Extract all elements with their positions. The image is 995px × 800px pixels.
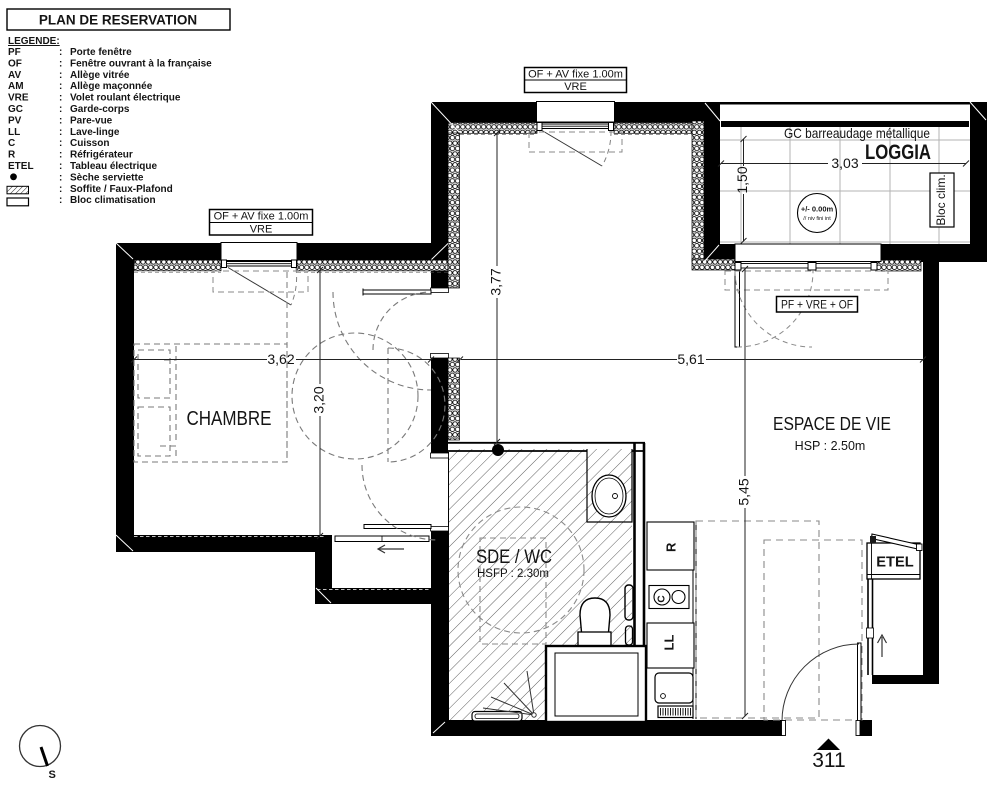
svg-text::: :	[59, 115, 62, 126]
svg-text:Allège vitrée: Allège vitrée	[70, 70, 130, 81]
svg-text::: :	[59, 127, 62, 138]
svg-text:C: C	[8, 138, 15, 149]
svg-text:Lave-linge: Lave-linge	[70, 127, 120, 138]
svg-text::: :	[59, 47, 62, 58]
svg-text:LEGENDE:: LEGENDE:	[8, 36, 60, 47]
svg-text:C: C	[657, 595, 668, 602]
svg-text:Allège maçonnée: Allège maçonnée	[70, 81, 153, 92]
svg-text::: :	[59, 172, 62, 183]
svg-text:SDE / WC: SDE / WC	[476, 547, 552, 568]
svg-text::: :	[59, 70, 62, 81]
svg-text:Porte fenêtre: Porte fenêtre	[70, 47, 132, 58]
svg-text:R: R	[8, 150, 16, 161]
svg-text:Volet roulant électrique: Volet roulant électrique	[70, 93, 181, 104]
svg-text:Bloc clim.: Bloc clim.	[934, 174, 948, 225]
svg-text:GC: GC	[8, 104, 23, 115]
svg-text:PLAN DE RESERVATION: PLAN DE RESERVATION	[39, 13, 197, 28]
svg-text::: :	[59, 93, 62, 104]
svg-text::: :	[59, 150, 62, 161]
svg-text:PF + VRE + OF: PF + VRE + OF	[781, 298, 853, 312]
svg-text:LL: LL	[8, 127, 20, 138]
svg-text:LOGGIA: LOGGIA	[865, 141, 931, 164]
svg-text:Bloc climatisation: Bloc climatisation	[70, 195, 156, 206]
svg-text:CHAMBRE: CHAMBRE	[187, 408, 272, 430]
svg-text:ETEL: ETEL	[8, 161, 34, 172]
svg-text:// niv fini int: // niv fini int	[803, 216, 831, 222]
svg-text:3,03: 3,03	[831, 155, 858, 171]
svg-text:GC barreaudage métallique: GC barreaudage métallique	[784, 125, 930, 141]
svg-text:311: 311	[812, 749, 845, 772]
svg-text::: :	[59, 58, 62, 69]
svg-text:LL: LL	[661, 635, 676, 651]
svg-text:3,62: 3,62	[267, 351, 294, 367]
svg-text:1,50: 1,50	[734, 166, 750, 193]
svg-text:R: R	[663, 542, 678, 552]
svg-text::: :	[59, 184, 62, 195]
svg-text:Sèche serviette: Sèche serviette	[70, 172, 144, 183]
svg-text:AM: AM	[8, 81, 24, 92]
svg-text:Garde-corps: Garde-corps	[70, 104, 130, 115]
svg-text:OF + AV fixe 1.00m: OF + AV fixe 1.00m	[528, 69, 623, 81]
svg-text:HSP : 2.50m: HSP : 2.50m	[795, 439, 866, 453]
svg-text:AV: AV	[8, 70, 21, 81]
svg-text:ESPACE DE VIE: ESPACE DE VIE	[773, 413, 891, 434]
svg-text:Cuisson: Cuisson	[70, 138, 109, 149]
svg-text:+/- 0.00m: +/- 0.00m	[801, 205, 834, 214]
svg-text:Soffite / Faux-Plafond: Soffite / Faux-Plafond	[70, 184, 173, 195]
svg-text:PF: PF	[8, 47, 21, 58]
svg-text:3,77: 3,77	[488, 268, 504, 295]
svg-text:3,20: 3,20	[311, 386, 327, 413]
svg-text:Pare-vue: Pare-vue	[70, 115, 113, 126]
svg-text::: :	[59, 138, 62, 149]
svg-text:5,61: 5,61	[677, 351, 704, 367]
svg-text:Réfrigérateur: Réfrigérateur	[70, 150, 133, 161]
svg-text:VRE: VRE	[8, 93, 29, 104]
svg-text:ETEL: ETEL	[876, 554, 914, 571]
svg-text::: :	[59, 104, 62, 115]
svg-text:VRE: VRE	[564, 81, 587, 93]
svg-text:OF + AV fixe 1.00m: OF + AV fixe 1.00m	[214, 211, 309, 223]
svg-text:S: S	[49, 769, 56, 781]
svg-text:OF: OF	[8, 58, 22, 69]
svg-text:PV: PV	[8, 115, 22, 126]
svg-text:HSFP : 2.30m: HSFP : 2.30m	[477, 568, 549, 580]
svg-text::: :	[59, 81, 62, 92]
svg-text:VRE: VRE	[250, 224, 273, 236]
svg-text::: :	[59, 161, 62, 172]
svg-text:Tableau électrique: Tableau électrique	[70, 161, 158, 172]
svg-text::: :	[59, 195, 62, 206]
svg-text:5,45: 5,45	[736, 478, 752, 505]
svg-text:Fenêtre ouvrant à la française: Fenêtre ouvrant à la française	[70, 58, 212, 69]
